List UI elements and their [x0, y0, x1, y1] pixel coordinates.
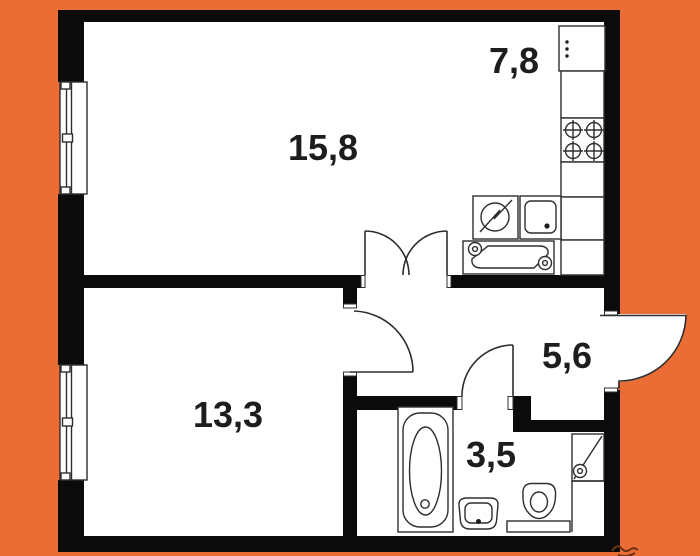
kitchen-counter-icon [561, 162, 604, 197]
shaft-riser-center [578, 469, 583, 474]
jamb-tick [361, 276, 365, 288]
window-cap [61, 473, 70, 480]
window-mullion [63, 418, 73, 426]
window-icon [60, 82, 87, 194]
jamb-tick [508, 397, 513, 410]
window-cap [61, 82, 70, 89]
stove-icon [561, 118, 604, 162]
window-cap [61, 365, 70, 372]
wall-segment [604, 390, 620, 552]
living-room-area-label: 15,8 [288, 127, 358, 168]
wall-segment [58, 10, 84, 82]
wall-segment [604, 10, 620, 314]
washing-machine-icon [473, 196, 518, 239]
wall-segment [531, 420, 604, 432]
wall-segment [343, 372, 357, 536]
wall-segment [84, 275, 365, 288]
jamb-tick [605, 311, 618, 315]
worktop-slab [472, 246, 548, 268]
window-cap [61, 187, 70, 194]
floor-plan-svg: 15,8 7,8 13,3 5,6 3,5 [0, 0, 700, 556]
worktop-knob-center [543, 261, 548, 266]
kitchen-sink-icon [520, 196, 561, 239]
wall-segment [58, 194, 84, 365]
worktop-knob-center [473, 247, 478, 252]
bedroom-area-label: 13,3 [193, 394, 263, 435]
worktop-unit-icon [463, 241, 554, 274]
bathtub-icon [398, 407, 453, 532]
jamb-tick [447, 276, 451, 288]
bathtub-drain [421, 500, 429, 508]
washbasin-icon [459, 498, 498, 529]
wall-segment [447, 275, 604, 288]
wall-segment [58, 536, 620, 552]
washbasin-faucet [476, 519, 481, 524]
jamb-tick [605, 388, 618, 392]
jamb-tick [457, 397, 462, 410]
bathroom-shelf [507, 521, 570, 532]
fridge-icon [559, 26, 605, 71]
wall-segment [58, 10, 620, 22]
toilet-bowl [531, 492, 548, 512]
hallway-area-label: 5,6 [542, 335, 592, 376]
sink-basin [525, 201, 556, 233]
wall-segment [513, 396, 531, 432]
kitchen-counter-icon [561, 71, 604, 118]
kitchen-area-label: 7,8 [489, 40, 539, 81]
kitchen-counter-icon [561, 197, 604, 240]
jamb-tick [344, 304, 357, 308]
window-icon [60, 365, 87, 480]
sink-faucet [544, 223, 549, 228]
fridge-dot [565, 40, 568, 43]
window-mullion [63, 134, 73, 142]
floor-plan-canvas: 15,8 7,8 13,3 5,6 3,5 [0, 0, 700, 556]
fridge-dot [565, 47, 568, 50]
kitchen-counter-icon [561, 240, 604, 275]
fridge-dot [565, 54, 568, 57]
bathroom-area-label: 3,5 [466, 434, 516, 475]
